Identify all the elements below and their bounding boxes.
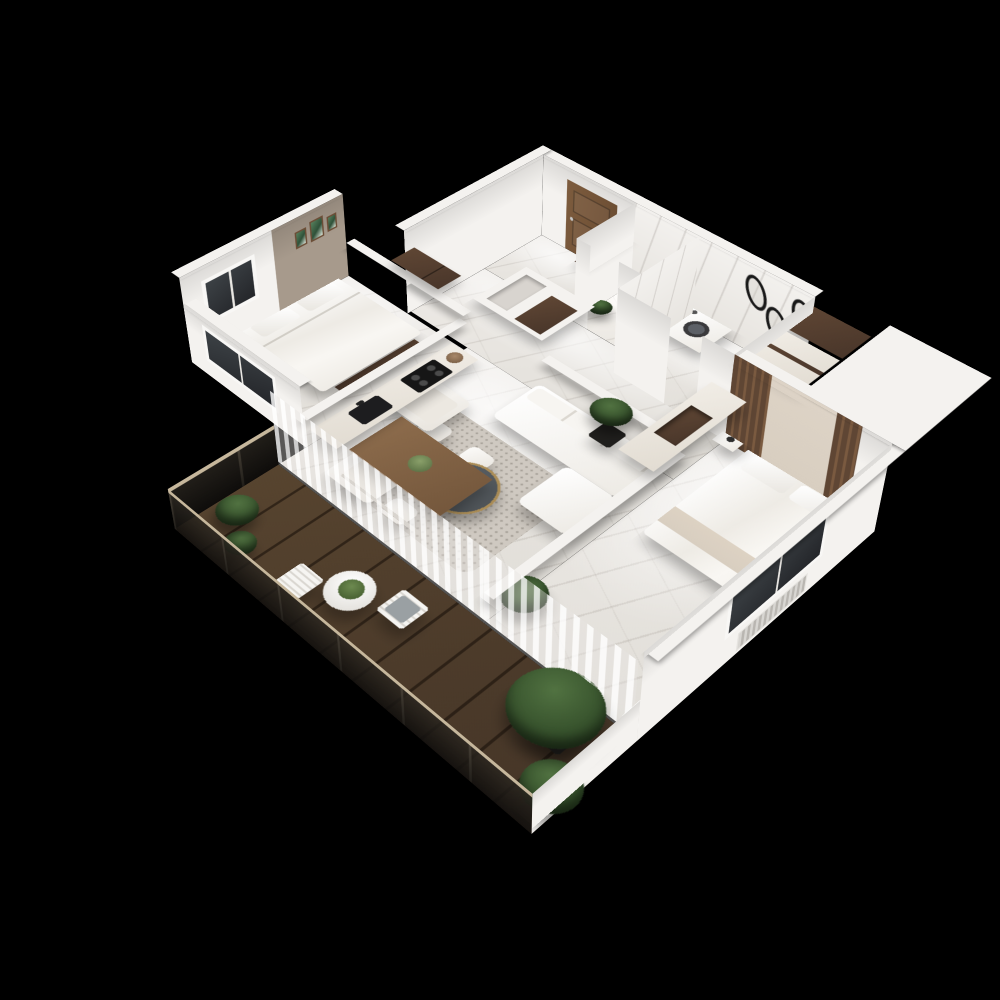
cooking-pot [443,350,467,365]
washer-dial [690,309,699,315]
bistro-plant [332,575,370,603]
render-stage [0,0,1000,1000]
washer-door [678,318,715,341]
table-plant [403,452,438,476]
bedside-lamp [725,436,736,444]
wardrobe-shelf-line [421,265,445,279]
apartment-floor-plan [59,202,950,838]
